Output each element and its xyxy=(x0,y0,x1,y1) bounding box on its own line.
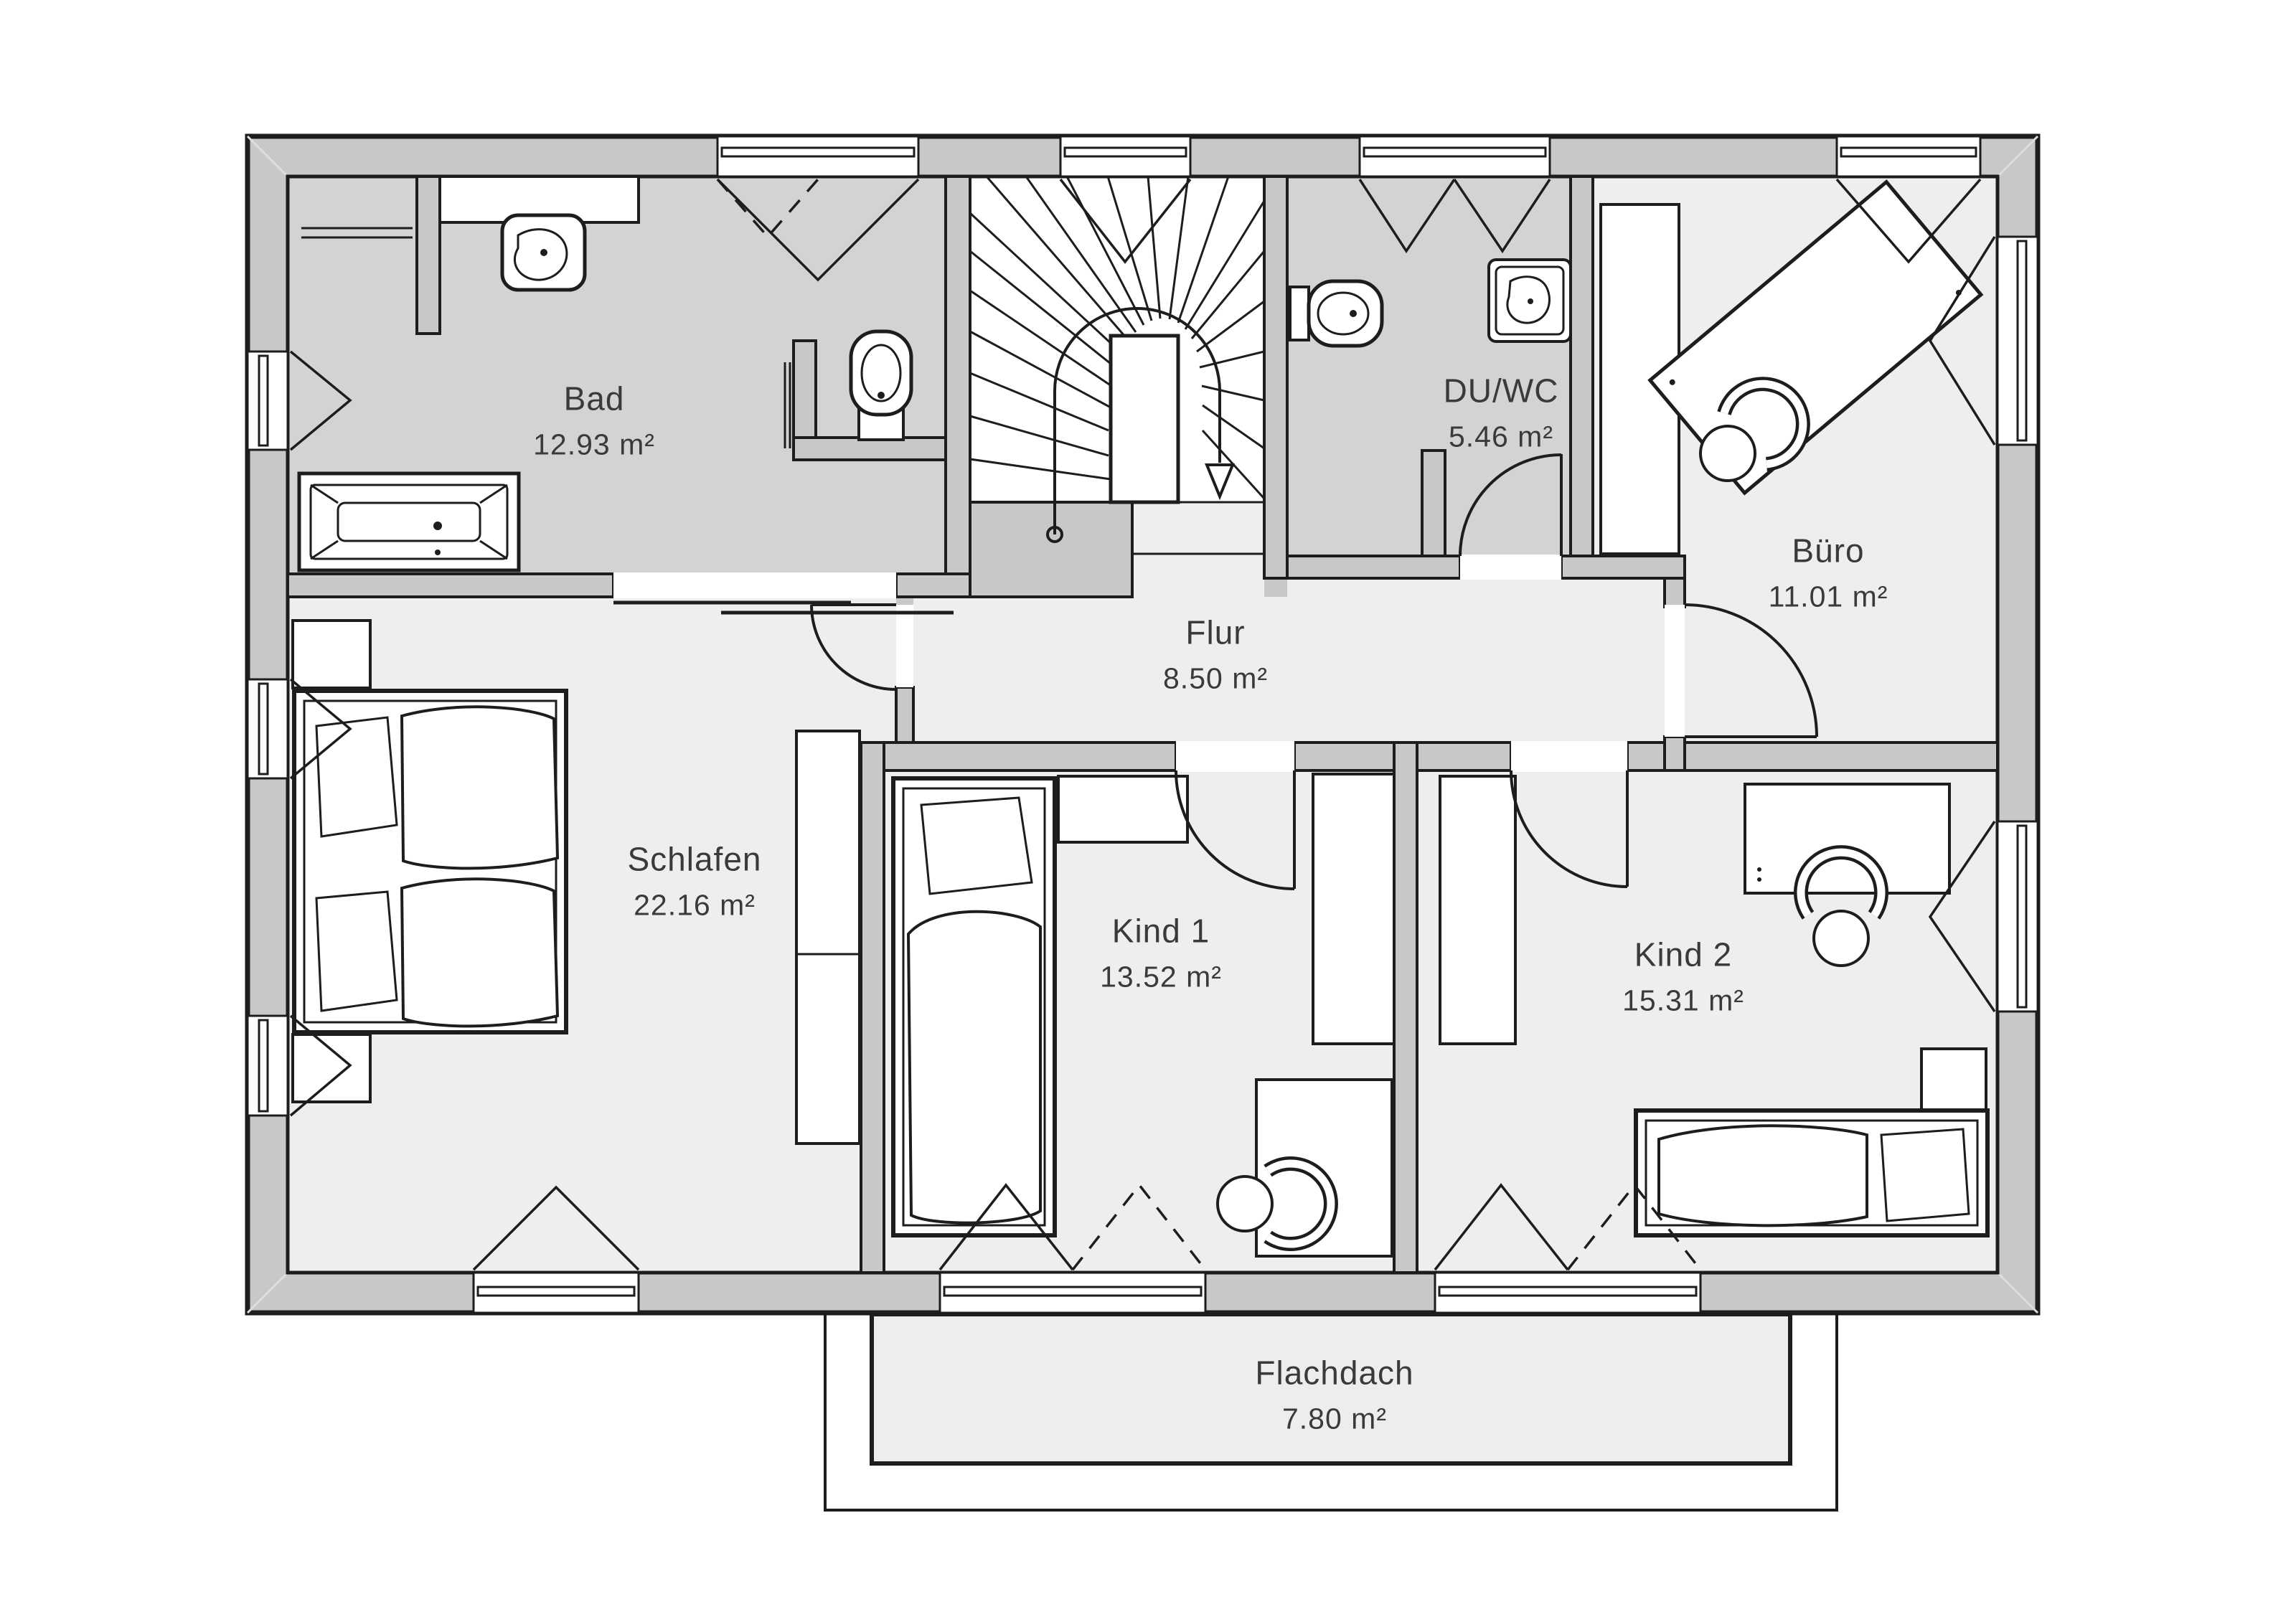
desk-icon xyxy=(1745,784,1949,893)
wardrobe-icon xyxy=(796,731,860,1144)
nightstand-icon xyxy=(293,621,370,688)
single-bed-icon xyxy=(1636,1111,1987,1235)
floor-flur-west xyxy=(913,597,1287,742)
bathtub-icon xyxy=(299,473,519,570)
wardrobe-icon xyxy=(1313,774,1394,1044)
flachdach-outline xyxy=(825,1314,1837,1510)
nightstand-icon xyxy=(293,1034,370,1102)
single-bed-icon xyxy=(893,778,1055,1235)
floor-plan: Bad 12.93 m² DU/WC 5.46 m² Büro 11.01 m²… xyxy=(0,0,2296,1622)
floor-stair-exit xyxy=(1132,502,1264,597)
wardrobe-icon xyxy=(1440,776,1515,1044)
shower-icon xyxy=(1489,260,1571,341)
nightstand-icon xyxy=(1921,1049,1986,1111)
nightstand-icon xyxy=(1058,776,1187,842)
stair-newel xyxy=(1111,336,1178,502)
floor-flur-east xyxy=(1287,578,1665,742)
toilet-icon xyxy=(1290,281,1382,346)
floor-plan-drawing xyxy=(0,0,2296,1622)
